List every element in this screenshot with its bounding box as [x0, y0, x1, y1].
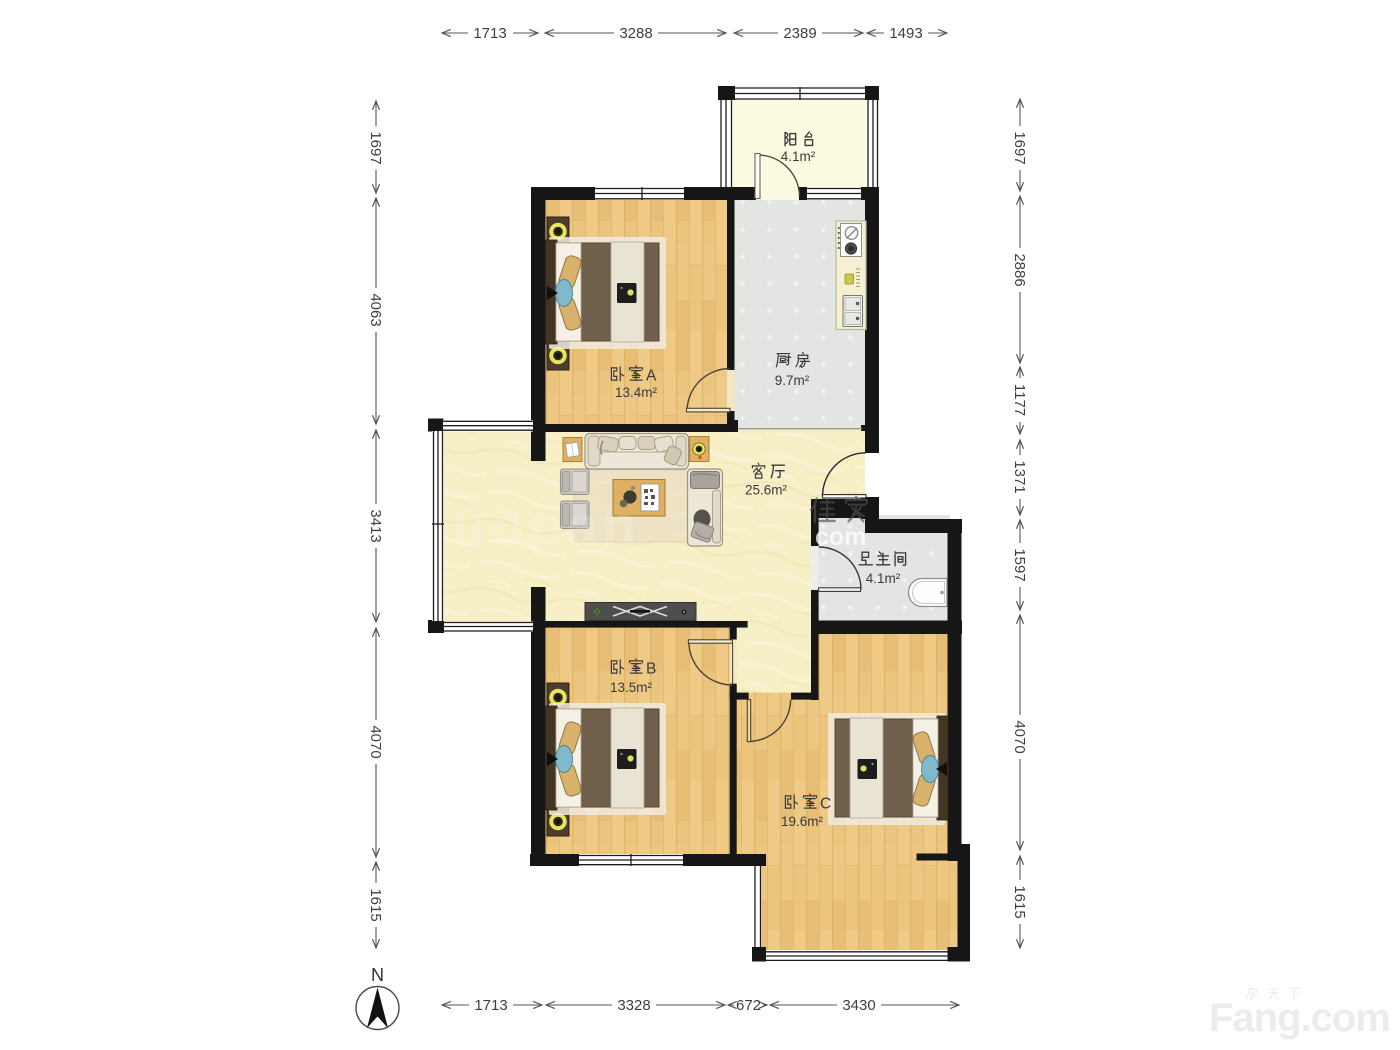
svg-text:C: C — [820, 796, 831, 813]
svg-text:672: 672 — [736, 997, 761, 1014]
svg-text:1713: 1713 — [474, 997, 507, 1014]
svg-text:19.6m²: 19.6m² — [781, 814, 824, 829]
svg-text:B: B — [646, 661, 656, 678]
svg-text:3430: 3430 — [842, 997, 875, 1014]
svg-text:25.6m²: 25.6m² — [745, 483, 788, 498]
svg-text:3288: 3288 — [619, 25, 652, 42]
svg-text:1615: 1615 — [1011, 885, 1028, 918]
svg-text:uopan: uopan — [452, 494, 640, 557]
svg-text:N: N — [371, 965, 384, 985]
svg-text:2886: 2886 — [1011, 253, 1028, 286]
svg-text:13.5m²: 13.5m² — [610, 680, 653, 695]
svg-text:1615: 1615 — [367, 888, 384, 921]
svg-text:4070: 4070 — [1011, 720, 1028, 753]
svg-text:4063: 4063 — [367, 293, 384, 326]
svg-text:13.4m²: 13.4m² — [615, 385, 658, 400]
svg-text:Fang.com: Fang.com — [1209, 996, 1390, 1040]
svg-text:1697: 1697 — [1011, 131, 1028, 164]
svg-text:4070: 4070 — [367, 725, 384, 758]
svg-text:com: com — [815, 523, 866, 551]
svg-text:3328: 3328 — [617, 997, 650, 1014]
svg-text:9.7m²: 9.7m² — [775, 373, 810, 388]
svg-text:4.1m²: 4.1m² — [866, 571, 901, 586]
svg-text:A: A — [646, 368, 657, 385]
svg-text:3413: 3413 — [367, 509, 384, 542]
svg-text:1371: 1371 — [1011, 460, 1028, 493]
svg-text:4.1m²: 4.1m² — [781, 149, 816, 164]
svg-text:1493: 1493 — [889, 25, 922, 42]
svg-text:1177: 1177 — [1011, 384, 1028, 416]
svg-text:2389: 2389 — [783, 25, 816, 42]
svg-text:1713: 1713 — [473, 25, 506, 42]
svg-text:1697: 1697 — [367, 131, 384, 164]
svg-text:1597: 1597 — [1011, 548, 1028, 581]
